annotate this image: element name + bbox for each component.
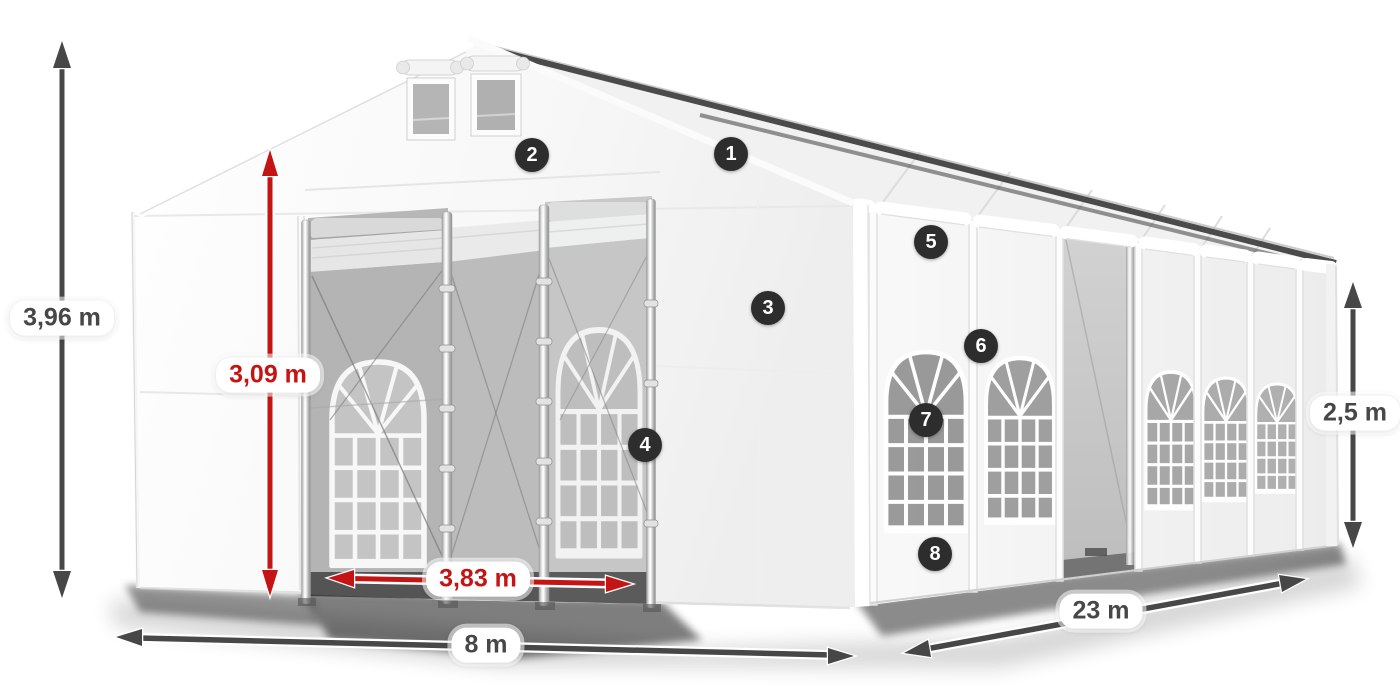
callout-badge-4-number: 4 [639, 434, 650, 457]
tent-illustration [0, 0, 1400, 700]
front-middle-bay [448, 220, 545, 602]
front-door-opening-right [545, 196, 652, 604]
dimension-label-entrance-height: 3,09 m [216, 358, 320, 393]
dimension-label-entrance-width: 3,83 m [426, 562, 530, 597]
callout-badge-3-number: 3 [762, 297, 773, 320]
dimension-label-tent-length: 23 m [1060, 594, 1143, 629]
front-door-opening-left [308, 208, 448, 600]
dimension-label-side-height: 2,5 m [1310, 396, 1400, 431]
side-door-opening [1062, 233, 1136, 580]
callout-badge-6-number: 6 [975, 335, 986, 358]
callout-badge-8: 8 [918, 537, 952, 571]
callout-badge-1-number: 1 [725, 143, 736, 166]
callout-badge-5: 5 [914, 225, 948, 259]
dimension-label-total-height: 3,96 m [10, 301, 114, 336]
callout-badge-7-number: 7 [920, 409, 931, 432]
tent-dimensions-diagram: 3,96 m 3,09 m 3,83 m 8 m 23 m 2,5 m 1 2 … [0, 0, 1400, 700]
callout-badge-4: 4 [628, 428, 662, 462]
dimension-label-tent-width: 8 m [451, 628, 520, 663]
callout-badge-3: 3 [751, 291, 785, 325]
callout-badge-8-number: 8 [929, 543, 940, 566]
callout-badge-1: 1 [714, 137, 748, 171]
callout-badge-2: 2 [515, 138, 549, 172]
corner-post-strip [853, 203, 870, 607]
callout-badge-6: 6 [964, 329, 998, 363]
callout-badge-7: 7 [909, 403, 943, 437]
callout-badge-5-number: 5 [925, 231, 936, 254]
callout-badge-2-number: 2 [526, 144, 537, 167]
